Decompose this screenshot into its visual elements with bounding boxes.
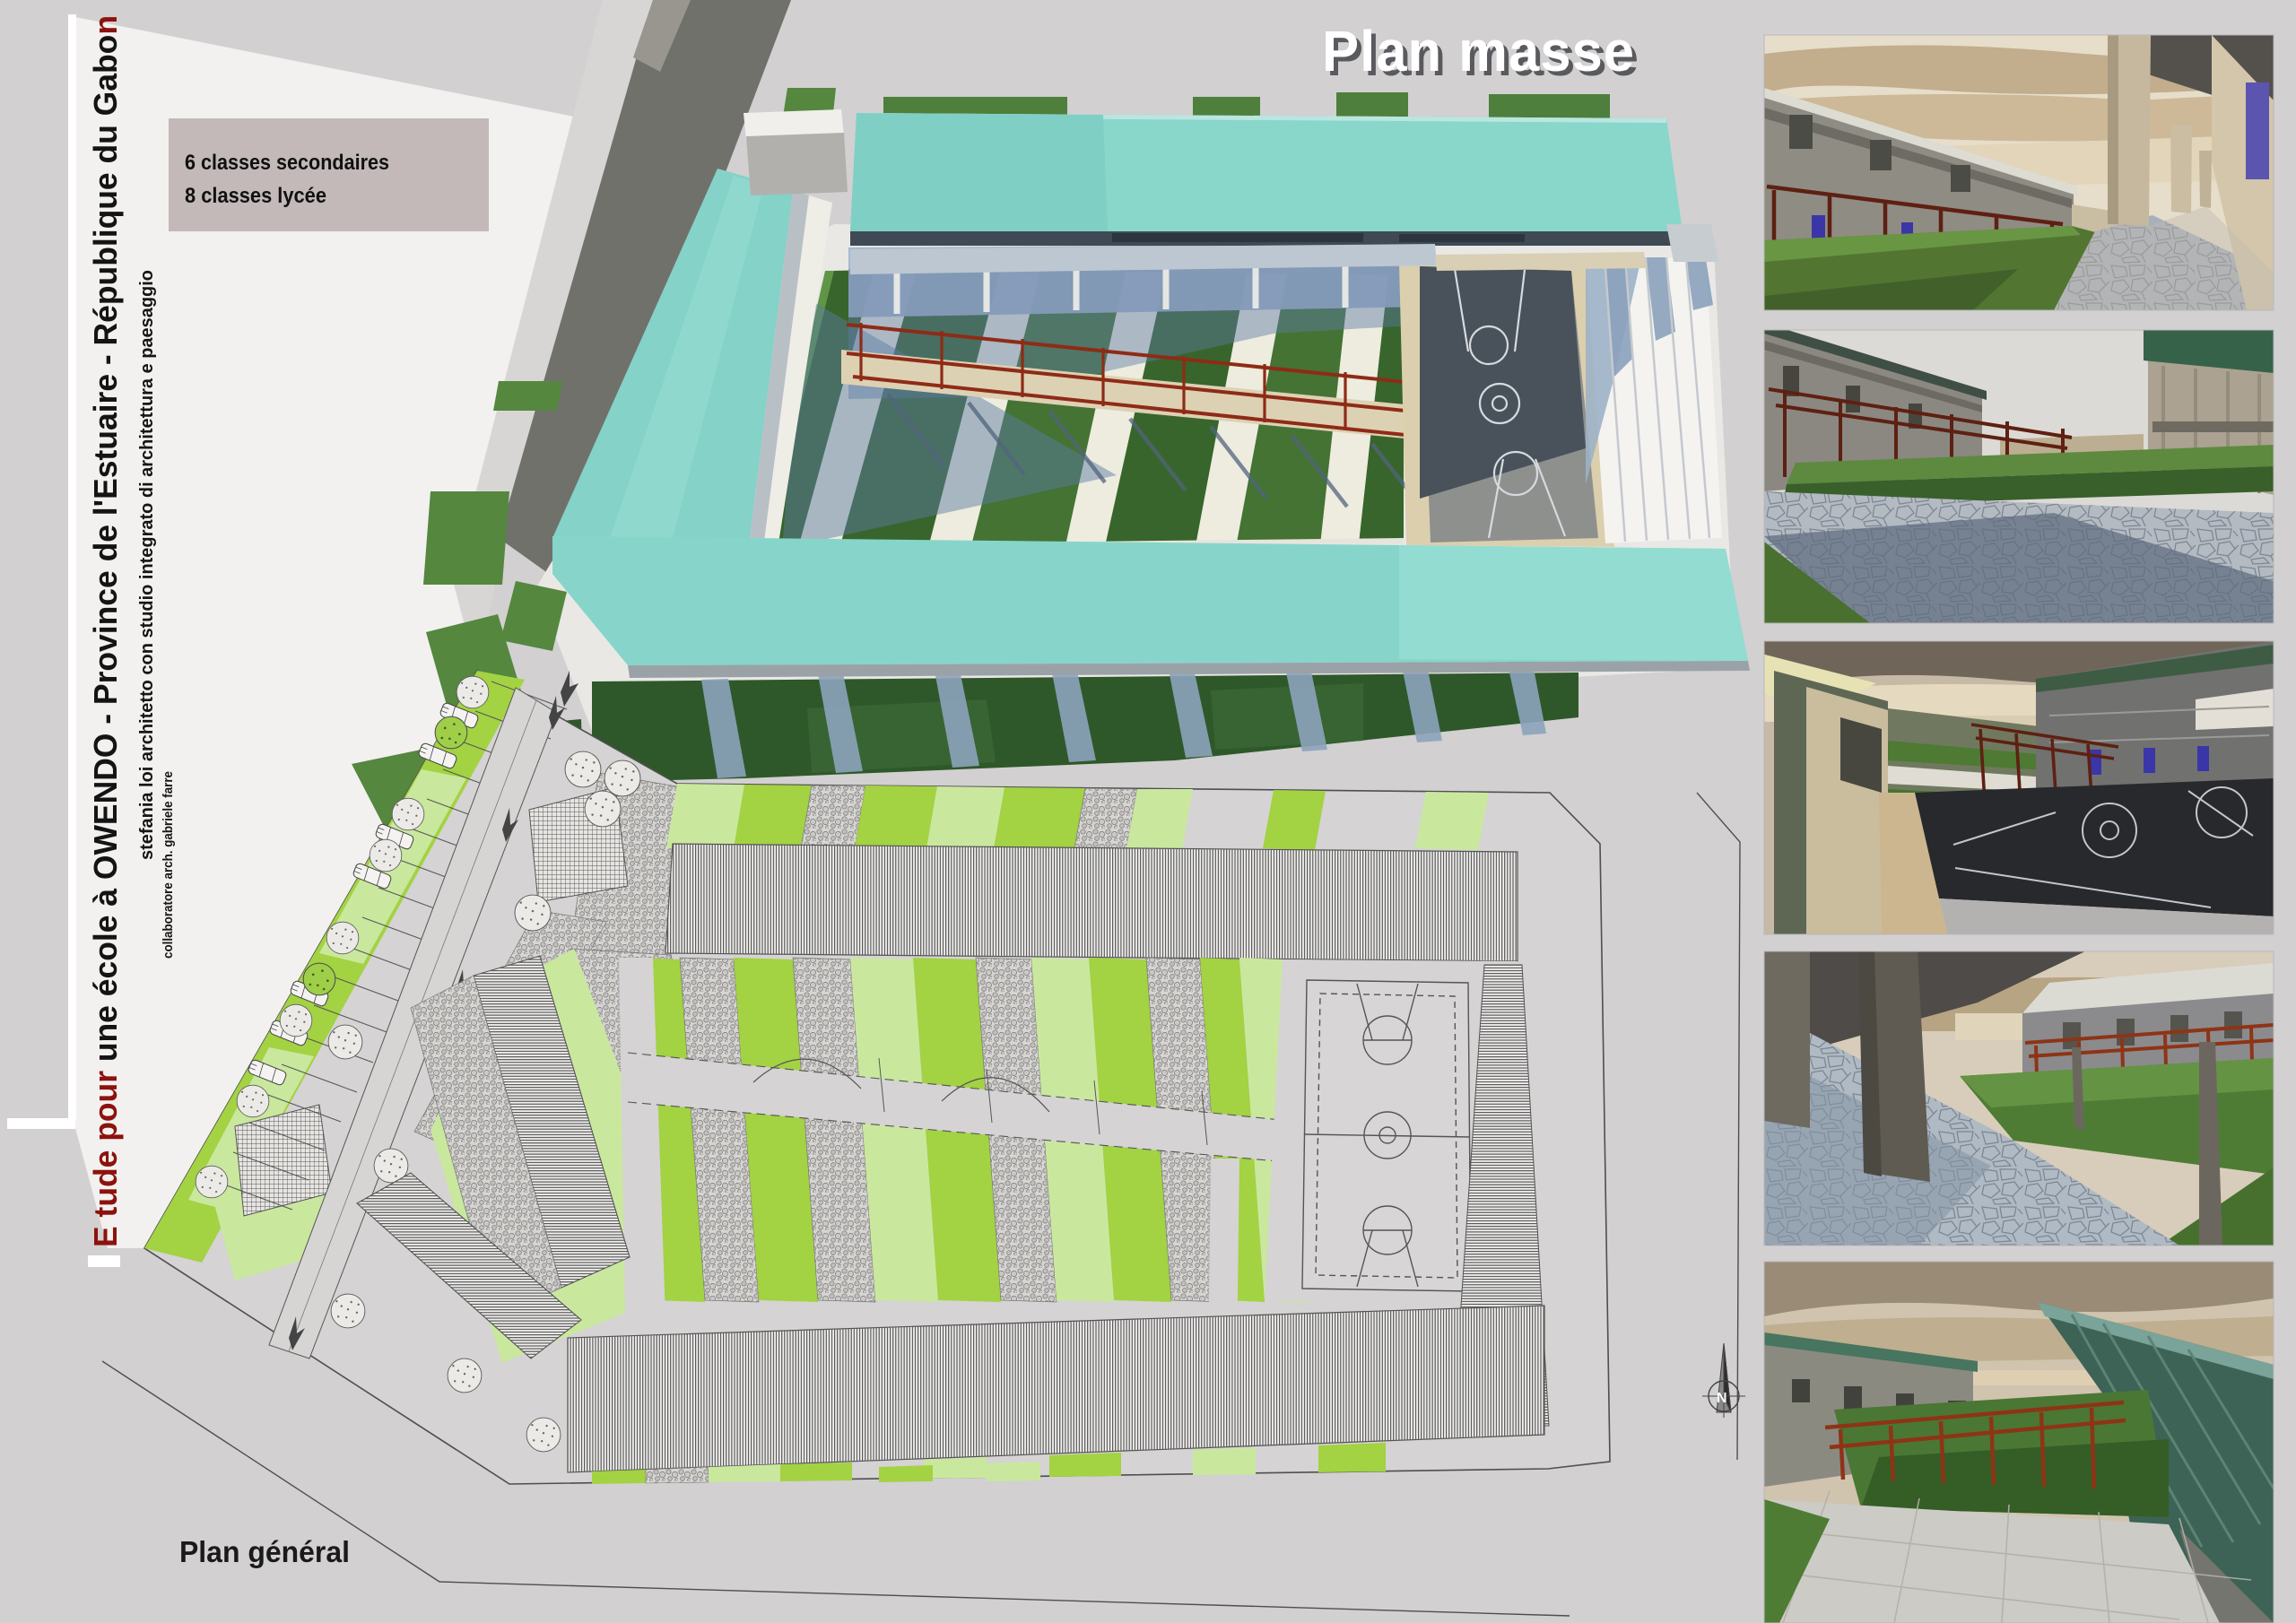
svg-text:E tude pour une école à OWENDO: E tude pour une école à OWENDO - Provinc… — [87, 15, 124, 1247]
svg-text:6 classes secondaires: 6 classes secondaires — [185, 151, 389, 175]
svg-text:Plan masse: Plan masse — [1322, 19, 1635, 83]
svg-text:N: N — [1717, 1391, 1727, 1406]
svg-text:8 classes lycée: 8 classes lycée — [185, 184, 326, 208]
svg-text:collaboratore arch. gabriele f: collaboratore arch. gabriele farre — [161, 771, 176, 959]
svg-text:stefania loi architetto con st: stefania loi architetto con studio integ… — [137, 270, 157, 860]
svg-text:Plan général: Plan général — [179, 1535, 350, 1568]
